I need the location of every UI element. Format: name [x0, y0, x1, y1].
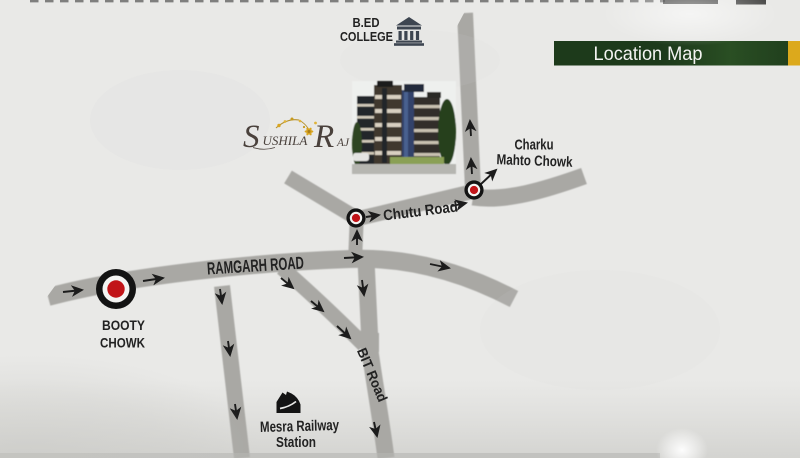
- svg-text:B.ED: B.ED: [353, 16, 380, 30]
- svg-text:S: S: [243, 119, 260, 155]
- svg-text:Station: Station: [276, 434, 316, 451]
- svg-text:Mahto Chowk: Mahto Chowk: [496, 152, 573, 171]
- svg-text:Charku: Charku: [515, 138, 554, 154]
- svg-text:CHOWK: CHOWK: [100, 335, 145, 351]
- svg-text:COLLEGE: COLLEGE: [340, 30, 393, 44]
- svg-text:Location Map: Location Map: [594, 43, 703, 65]
- svg-text:USHILA: USHILA: [263, 133, 308, 148]
- svg-text:R: R: [313, 119, 334, 155]
- svg-text:BOOTY: BOOTY: [102, 317, 146, 333]
- svg-text:AJ: AJ: [336, 135, 350, 149]
